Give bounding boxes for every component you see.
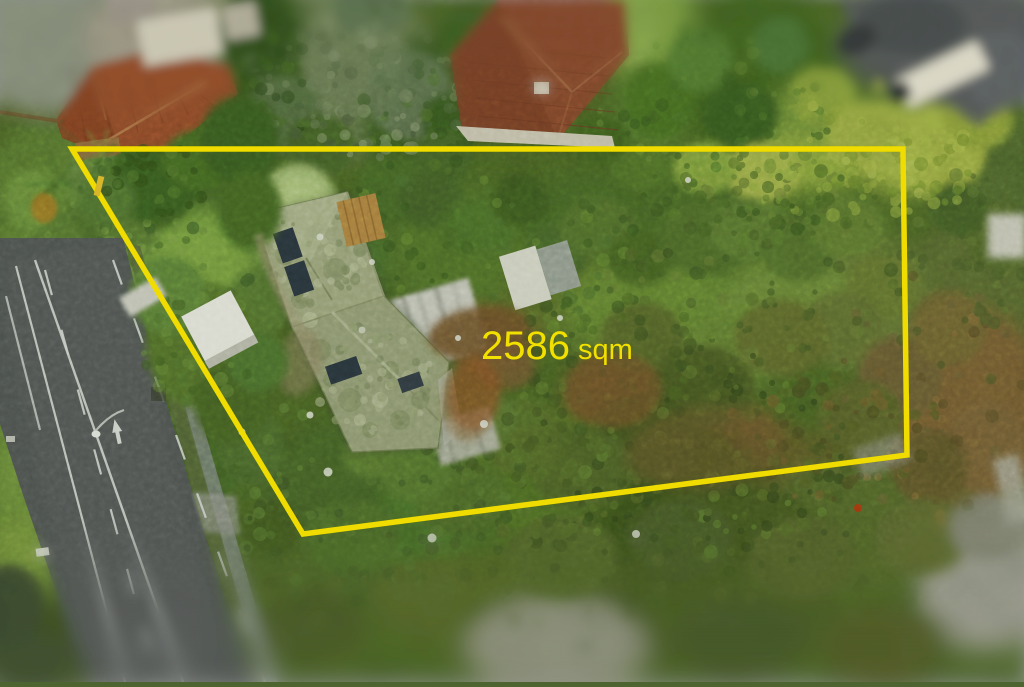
- svg-text:2586: 2586: [481, 324, 570, 368]
- svg-text:sqm: sqm: [578, 334, 633, 366]
